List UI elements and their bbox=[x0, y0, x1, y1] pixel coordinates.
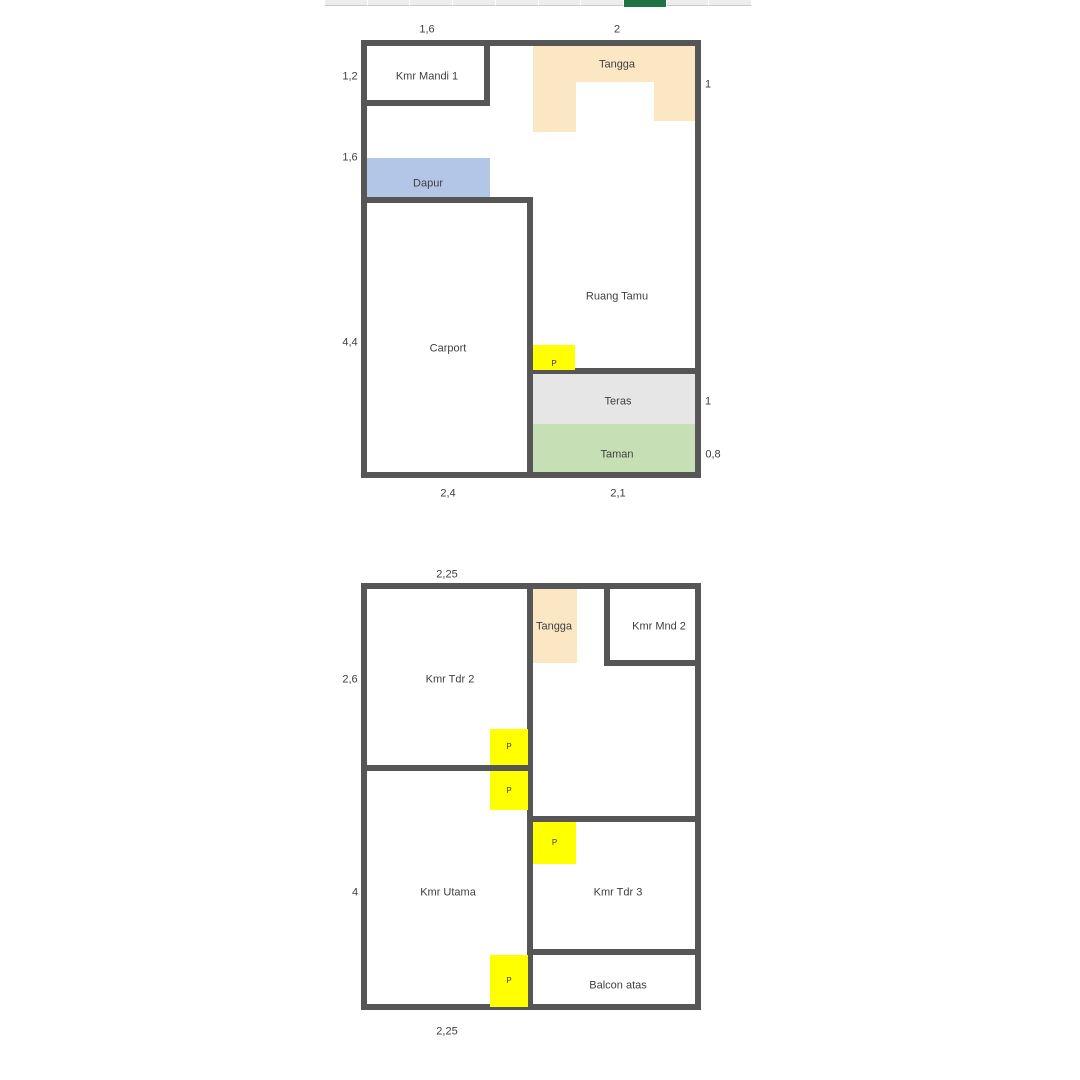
room-label-kmr-tdr-2: Kmr Tdr 2 bbox=[426, 675, 475, 686]
door-label: P bbox=[552, 839, 557, 847]
floor-plan-canvas: PKmr Mandi 1TanggaDapurCarportRuang Tamu… bbox=[0, 0, 1080, 1080]
center-vertical-wall bbox=[527, 197, 533, 478]
kmr-tdr3-bottom-wall bbox=[527, 949, 701, 955]
sheet-cell[interactable] bbox=[539, 0, 582, 6]
sheet-cell-selected-green[interactable] bbox=[624, 0, 667, 7]
dimension-label: 1,6 bbox=[342, 153, 357, 164]
door-marker: P bbox=[533, 345, 575, 370]
door-label: P bbox=[506, 787, 511, 795]
room-label-kmr-mandi-1: Kmr Mandi 1 bbox=[396, 72, 458, 83]
spreadsheet-row-strip[interactable] bbox=[325, 0, 752, 6]
sheet-cell[interactable] bbox=[667, 0, 710, 6]
dimension-label: 4,4 bbox=[342, 338, 357, 349]
dimension-label: 2,25 bbox=[436, 570, 457, 581]
room-label-tangga: Tangga bbox=[536, 622, 572, 633]
dimension-label: 1,2 bbox=[342, 72, 357, 83]
door-marker: P bbox=[490, 729, 528, 765]
room-label-tangga: Tangga bbox=[599, 60, 635, 71]
room-label-kmr-tdr-3: Kmr Tdr 3 bbox=[594, 888, 643, 899]
dimension-label: 2,4 bbox=[440, 489, 455, 500]
dimension-label: 1 bbox=[705, 80, 711, 91]
dimension-label: 2 bbox=[614, 25, 620, 36]
dimension-label: 1 bbox=[705, 397, 711, 408]
kmr-mnd2-bottom-wall bbox=[604, 660, 701, 666]
sheet-cell[interactable] bbox=[325, 0, 368, 6]
room-label-dapur: Dapur bbox=[413, 179, 443, 190]
room-label-taman: Taman bbox=[600, 450, 633, 461]
dimension-label: 2,25 bbox=[436, 1027, 457, 1038]
sheet-cell[interactable] bbox=[496, 0, 539, 6]
sheet-cell[interactable] bbox=[709, 0, 752, 6]
room-label-kmr-utama: Kmr Utama bbox=[420, 888, 476, 899]
room-label-teras: Teras bbox=[605, 397, 632, 408]
carport-top-wall bbox=[361, 197, 533, 203]
door-marker: P bbox=[533, 822, 576, 864]
door-label: P bbox=[551, 360, 556, 368]
kmr-mandi-right-wall bbox=[484, 40, 490, 106]
dimension-label: 2,6 bbox=[342, 675, 357, 686]
door-marker: P bbox=[490, 955, 528, 1007]
kmr-mnd2-left-wall bbox=[604, 583, 610, 666]
sheet-cell[interactable] bbox=[368, 0, 411, 6]
door-label: P bbox=[506, 743, 511, 751]
door-label: P bbox=[506, 977, 511, 985]
kmr-mandi-bottom-wall bbox=[361, 100, 490, 106]
sheet-cell[interactable] bbox=[581, 0, 624, 6]
dimension-label: 2,1 bbox=[610, 489, 625, 500]
room-label-balcon-atas: Balcon atas bbox=[589, 981, 646, 992]
dimension-label: 4 bbox=[352, 888, 358, 899]
dimension-label: 0,8 bbox=[705, 450, 720, 461]
room-label-ruang-tamu: Ruang Tamu bbox=[586, 292, 648, 303]
room-label-kmr-mnd-2: Kmr Mnd 2 bbox=[632, 622, 686, 633]
sheet-cell[interactable] bbox=[410, 0, 453, 6]
room-label-carport: Carport bbox=[430, 344, 467, 355]
door-marker: P bbox=[490, 771, 528, 810]
dimension-label: 1,6 bbox=[419, 25, 434, 36]
sheet-cell[interactable] bbox=[453, 0, 496, 6]
